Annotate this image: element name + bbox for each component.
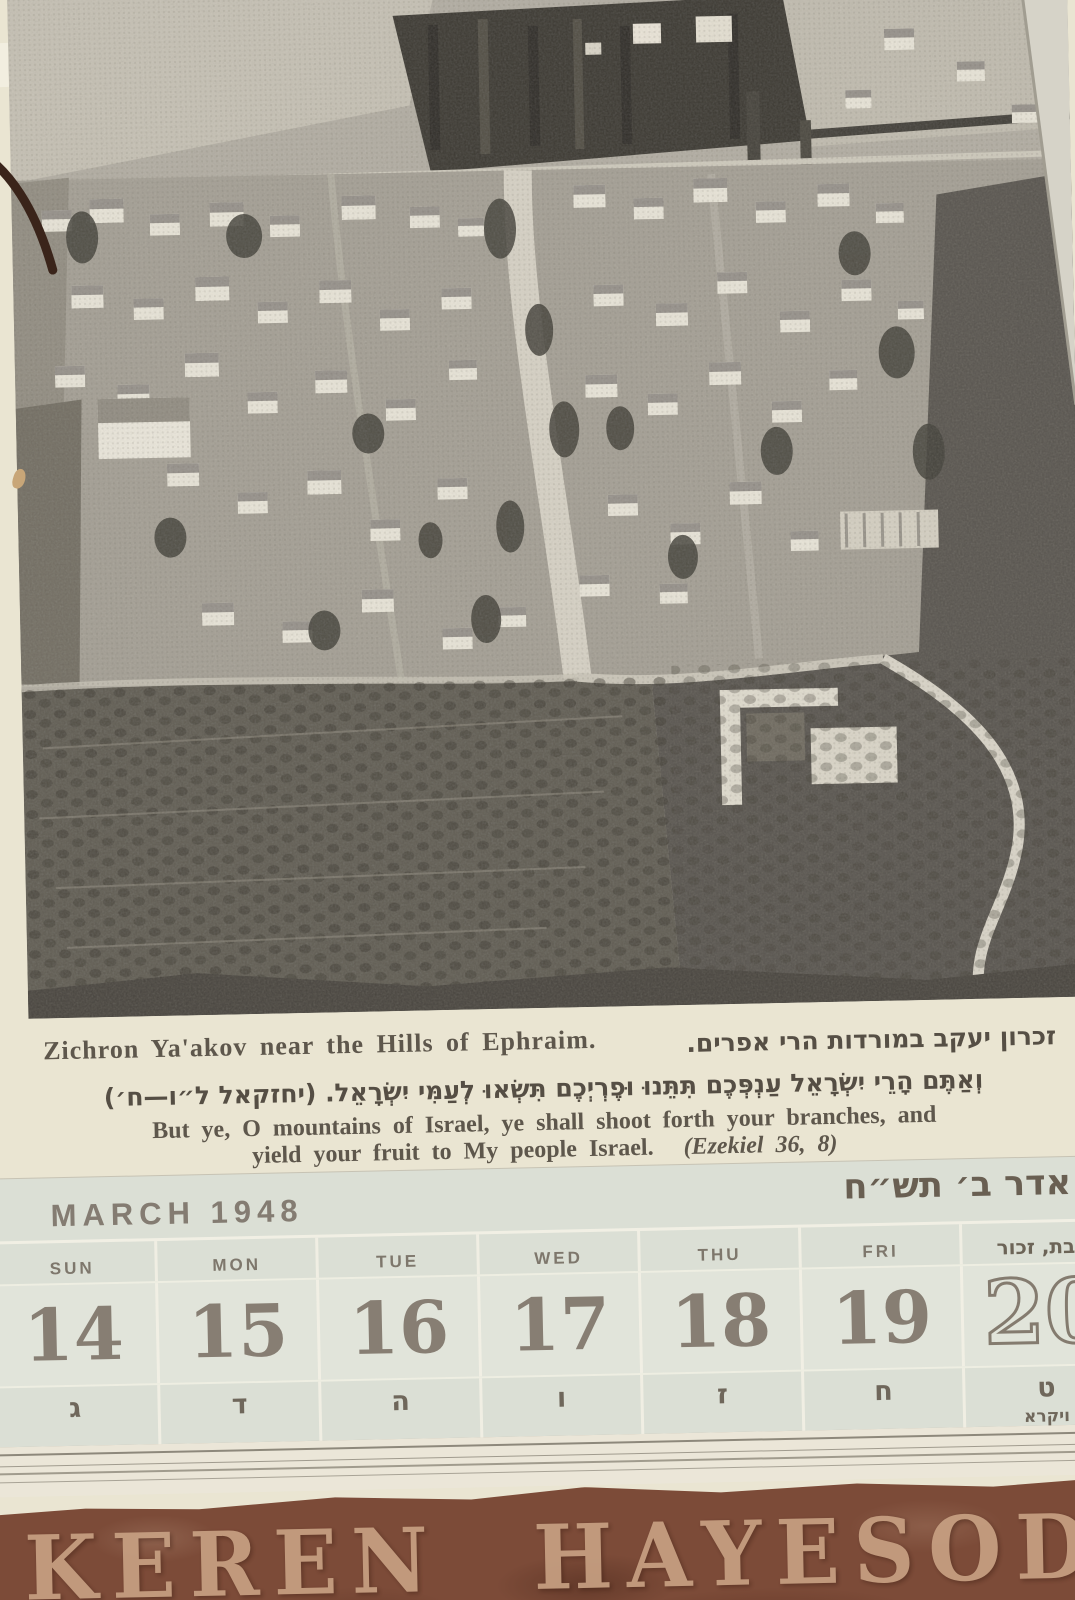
caption-english: Zichron Ya'akov near the Hills of Ephrai… <box>43 1025 597 1067</box>
date-cell: 16 <box>316 1276 479 1379</box>
date-16: 16 <box>348 1277 450 1379</box>
aerial-photo-art <box>7 0 1075 1019</box>
brand-title: KEREN HAYESOD <box>0 1493 1075 1600</box>
calendar-band: MARCH 1948 אדר ב׳ תש״ח SUN MON TUE WED T… <box>0 1156 1075 1448</box>
paper-chip <box>0 43 9 88</box>
day-name-tue: TUE <box>315 1234 477 1277</box>
date-cell: 17 <box>477 1273 640 1376</box>
date-cell: 15 <box>155 1280 318 1383</box>
aerial-photo-zichron-yaakov <box>7 0 1075 1019</box>
date-19: 19 <box>831 1267 933 1369</box>
day-name-fri: FRI <box>798 1224 960 1267</box>
calendar-page: Zichron Ya'akov near the Hills of Ephrai… <box>0 0 1075 1600</box>
date-cell: 18 <box>638 1270 801 1373</box>
date-15: 15 <box>187 1280 289 1382</box>
hanging-cord <box>0 138 77 290</box>
day-name-wed: WED <box>476 1231 638 1274</box>
verse-source: (Ezekiel 36, 8) <box>683 1131 837 1160</box>
day-name-mon: MON <box>154 1238 316 1281</box>
date-cell-sabbath: 20 <box>960 1263 1075 1366</box>
caption-row: Zichron Ya'akov near the Hills of Ephrai… <box>5 1015 1075 1073</box>
svg-text:20: 20 <box>983 1265 1075 1364</box>
day-name-sabbath: שבת, זכור <box>959 1221 1075 1264</box>
day-name-sun: SUN <box>0 1241 155 1284</box>
date-14: 14 <box>22 1284 124 1386</box>
date-18: 18 <box>670 1270 772 1372</box>
calendar-page-photo: Zichron Ya'akov near the Hills of Ephrai… <box>0 0 1075 1600</box>
date-17: 17 <box>509 1274 611 1376</box>
date-cell: 14 <box>0 1283 157 1386</box>
month-title: MARCH 1948 <box>50 1193 304 1240</box>
day-name-thu: THU <box>637 1228 799 1271</box>
caption-hebrew: זכרון יעקב במורדות הרי אפרים. <box>686 1021 1056 1058</box>
date-cell: 19 <box>799 1266 962 1369</box>
hebrew-date-7: ט ויקרא <box>962 1365 1075 1434</box>
hebrew-month-title: אדר ב׳ תש״ח <box>843 1163 1072 1224</box>
date-20-outlined: 20 <box>974 1265 1075 1364</box>
hebrew-date-letter: ט <box>1037 1372 1056 1403</box>
